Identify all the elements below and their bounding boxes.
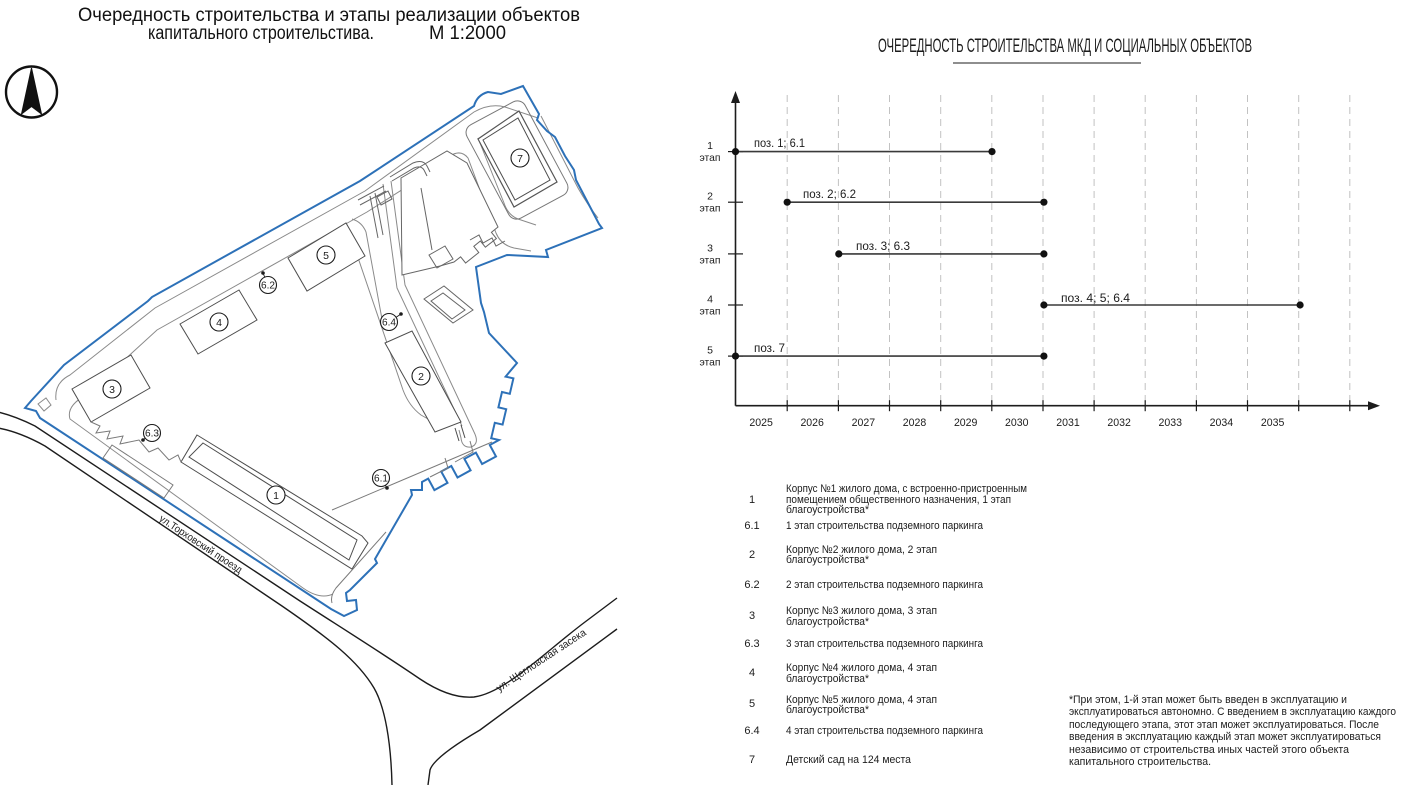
svg-text:2028: 2028 bbox=[903, 417, 927, 429]
svg-text:благоустройства*: благоустройства* bbox=[786, 616, 870, 628]
svg-text:1 этап строительства подземног: 1 этап строительства подземного паркинга bbox=[786, 520, 984, 532]
svg-text:2 этап строительства подземног: 2 этап строительства подземного паркинга bbox=[786, 579, 984, 591]
svg-text:1: 1 bbox=[707, 140, 713, 152]
svg-text:1: 1 bbox=[749, 494, 755, 506]
svg-text:2033: 2033 bbox=[1159, 417, 1183, 429]
svg-text:1: 1 bbox=[273, 490, 279, 502]
svg-text:Детский сад на 124 места: Детский сад на 124 места bbox=[786, 754, 912, 766]
svg-text:5: 5 bbox=[749, 698, 755, 710]
svg-text:поз. 2; 6.2: поз. 2; 6.2 bbox=[803, 187, 856, 201]
svg-text:6.2: 6.2 bbox=[261, 281, 275, 292]
svg-text:2: 2 bbox=[749, 549, 755, 561]
svg-text:2: 2 bbox=[707, 191, 713, 203]
svg-text:4: 4 bbox=[707, 294, 713, 306]
svg-text:2030: 2030 bbox=[1005, 417, 1029, 429]
svg-text:эксплуатироваться автономно. С: эксплуатироваться автономно. С введением… bbox=[1069, 706, 1396, 718]
svg-text:этап: этап bbox=[700, 357, 721, 369]
svg-text:2035: 2035 bbox=[1261, 417, 1285, 429]
svg-text:М 1:2000: М 1:2000 bbox=[429, 23, 506, 44]
svg-text:4 этап строительства подземног: 4 этап строительства подземного паркинга bbox=[786, 725, 984, 737]
svg-text:этап: этап bbox=[700, 254, 721, 266]
svg-text:этап: этап bbox=[700, 306, 721, 318]
svg-text:поз. 7: поз. 7 bbox=[754, 341, 785, 355]
svg-text:*При этом, 1-й этап может быть: *При этом, 1-й этап может быть введен в … bbox=[1069, 694, 1347, 706]
svg-text:7: 7 bbox=[517, 153, 523, 165]
svg-text:6.2: 6.2 bbox=[744, 579, 759, 591]
svg-text:6.1: 6.1 bbox=[744, 520, 759, 532]
svg-text:4: 4 bbox=[749, 667, 755, 679]
svg-text:капитального строительства.: капитального строительства. bbox=[1069, 756, 1211, 768]
svg-text:поз. 1; 6.1: поз. 1; 6.1 bbox=[754, 136, 805, 150]
svg-text:2026: 2026 bbox=[800, 417, 824, 429]
svg-text:3 этап строительства подземног: 3 этап строительства подземного паркинга bbox=[786, 638, 984, 650]
svg-text:ОЧЕРЕДНОСТЬ СТРОИТЕЛЬСТВА МКД: ОЧЕРЕДНОСТЬ СТРОИТЕЛЬСТВА МКД И СОЦИАЛЬН… bbox=[878, 36, 1252, 57]
svg-text:последующего этапа, этот этап: последующего этапа, этот этап может эксп… bbox=[1069, 719, 1379, 731]
svg-text:6.3: 6.3 bbox=[744, 638, 759, 650]
svg-text:благоустройства*: благоустройства* bbox=[786, 673, 870, 685]
svg-text:6.4: 6.4 bbox=[382, 318, 396, 329]
svg-text:поз. 4; 5; 6.4: поз. 4; 5; 6.4 bbox=[1061, 291, 1130, 305]
svg-text:2032: 2032 bbox=[1107, 417, 1131, 429]
svg-text:4: 4 bbox=[216, 317, 222, 329]
svg-text:этап: этап bbox=[700, 152, 721, 164]
svg-text:5: 5 bbox=[707, 345, 713, 357]
svg-text:2027: 2027 bbox=[852, 417, 876, 429]
svg-text:2: 2 bbox=[418, 371, 424, 383]
svg-text:2025: 2025 bbox=[749, 417, 773, 429]
svg-text:6.1: 6.1 bbox=[374, 474, 388, 485]
svg-text:2031: 2031 bbox=[1056, 417, 1080, 429]
svg-text:2029: 2029 bbox=[954, 417, 978, 429]
svg-text:7: 7 bbox=[749, 754, 755, 766]
svg-text:2034: 2034 bbox=[1210, 417, 1234, 429]
svg-text:5: 5 bbox=[323, 250, 329, 262]
svg-text:капитального строительстива.: капитального строительстива. bbox=[148, 23, 374, 44]
svg-text:независимо от строительства ин: независимо от строительства иных частей … bbox=[1069, 744, 1350, 756]
svg-text:3: 3 bbox=[707, 242, 713, 254]
svg-text:этап: этап bbox=[700, 203, 721, 215]
svg-text:благоустройства*: благоустройства* bbox=[786, 554, 870, 566]
svg-text:6.3: 6.3 bbox=[145, 429, 159, 440]
svg-text:поз. 3; 6.3: поз. 3; 6.3 bbox=[856, 239, 910, 253]
svg-text:6.4: 6.4 bbox=[744, 725, 759, 737]
svg-text:введения в эксплуатацию каждый: введения в эксплуатацию каждый этап може… bbox=[1069, 731, 1381, 743]
svg-text:благоустройства*: благоустройства* bbox=[786, 704, 870, 716]
svg-text:3: 3 bbox=[749, 610, 755, 622]
svg-text:благоустройства*: благоустройства* bbox=[786, 504, 870, 516]
svg-text:3: 3 bbox=[109, 384, 115, 396]
